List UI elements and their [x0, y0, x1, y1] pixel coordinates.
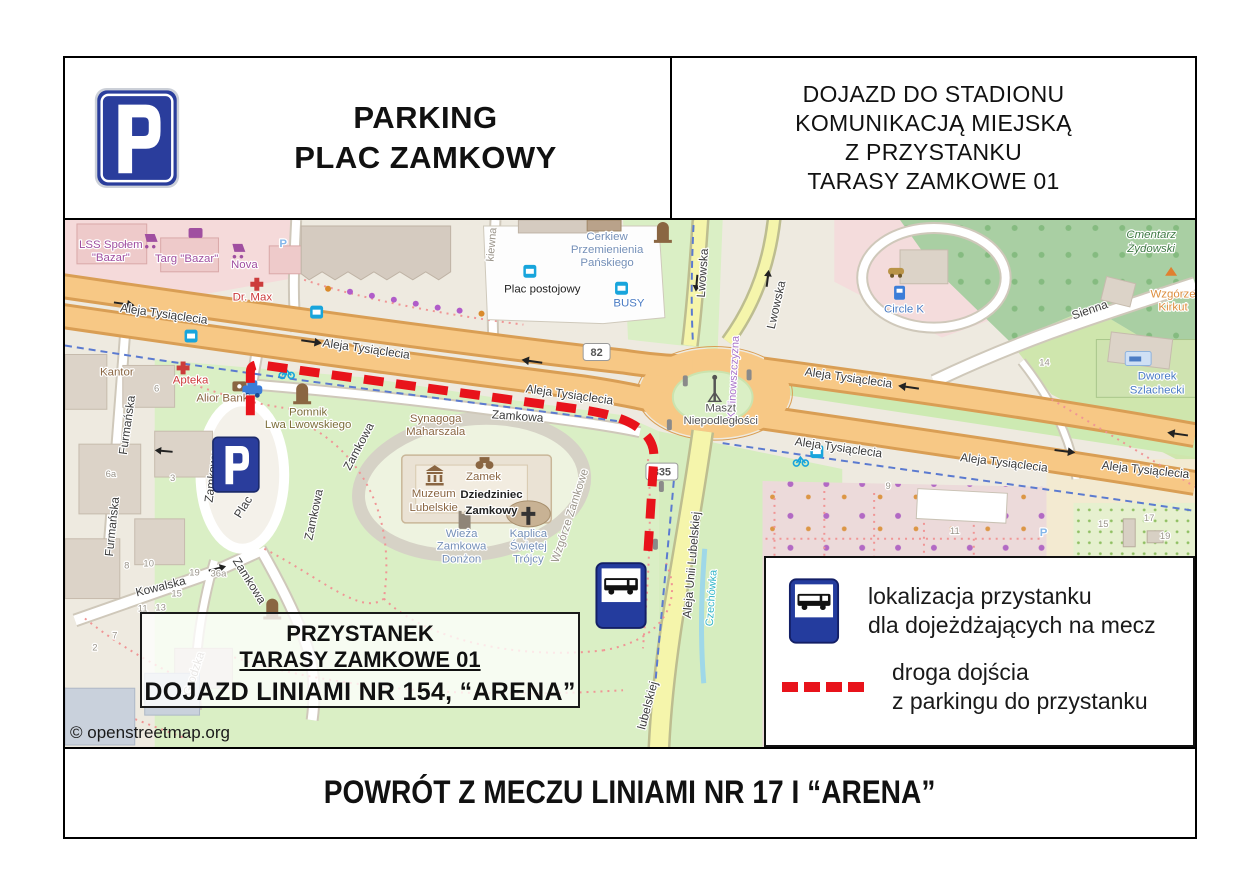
bus-stop-marker	[596, 563, 645, 628]
poi-label: Kaplica	[510, 528, 548, 540]
poi-label: Wzgórze	[1151, 289, 1195, 301]
header-info-line: DOJAZD DO STADIONU	[672, 80, 1195, 109]
poi-label: Żydowski	[1126, 243, 1175, 255]
poi-label: Kantor	[100, 366, 134, 378]
parking-letter-label: P	[1040, 527, 1048, 539]
title-line-1: PARKING	[181, 98, 670, 138]
stop-info-box: PRZYSTANEK TARASY ZAMKOWE 01 DOJAZD LINI…	[140, 612, 580, 708]
header: PARKING PLAC ZAMKOWY DOJAZD DO STADIONU …	[65, 58, 1195, 220]
map-copyright: © openstreetmap.org	[70, 723, 230, 743]
legend-route-label: droga dojścia z parkingu do przystanku	[892, 658, 1148, 716]
svg-text:10: 10	[143, 559, 154, 570]
poi-label: Dziedziniec	[460, 489, 523, 501]
legend-stop-line1: lokalizacja przystanku	[868, 582, 1156, 611]
poi-label: Dr. Max	[233, 292, 273, 304]
poi-label: Przemienienia	[571, 244, 644, 256]
stop-info-line1: PRZYSTANEK	[142, 621, 578, 647]
poi-label: Cerkiew	[586, 231, 628, 243]
svg-text:6: 6	[154, 383, 159, 394]
svg-text:19: 19	[1160, 531, 1171, 542]
header-parking-cell: PARKING PLAC ZAMKOWY	[65, 58, 672, 218]
stop-info-line2: TARASY ZAMKOWE 01	[142, 647, 578, 673]
svg-text:15: 15	[171, 589, 182, 600]
header-info-line: KOMUNIKACJĄ MIEJSKĄ	[672, 109, 1195, 138]
poi-label: Plac postojowy	[504, 284, 581, 296]
poi-label: Donżon	[442, 554, 481, 566]
svg-text:14: 14	[1039, 357, 1050, 368]
poi-label: Zamkowy	[465, 505, 518, 517]
legend-route-dash-icon	[782, 682, 864, 692]
poi-label: Kirkut	[1158, 302, 1188, 314]
poi-label: Maszt	[705, 402, 736, 414]
poi-label: Wieża	[446, 528, 478, 540]
legend: lokalizacja przystanku dla dojeżdżającyc…	[764, 556, 1195, 747]
parking-letter-label: P	[279, 238, 287, 250]
legend-row-route: droga dojścia z parkingu do przystanku	[788, 658, 1193, 716]
svg-text:7: 7	[112, 630, 117, 641]
parking-sign-icon	[93, 87, 181, 189]
map: 82 835 Aleja Tysiąclecia Aleja Ty	[65, 220, 1195, 749]
header-info-cell: DOJAZD DO STADIONU KOMUNIKACJĄ MIEJSKĄ Z…	[672, 58, 1195, 218]
svg-text:2: 2	[92, 642, 97, 653]
svg-text:15: 15	[1098, 519, 1109, 530]
svg-text:11: 11	[950, 526, 960, 537]
poi-label: Dworek	[1138, 370, 1177, 382]
legend-bus-stop-icon	[788, 578, 840, 644]
poi-label: Circle K	[884, 304, 924, 316]
svg-text:19: 19	[189, 568, 200, 579]
poi-label: Cmentarz	[1126, 229, 1176, 241]
hotel-icon	[189, 228, 203, 238]
poi-label: "Bazar"	[92, 252, 130, 264]
poi-label: Pańskiego	[580, 257, 633, 269]
svg-text:8: 8	[124, 561, 129, 572]
poi-label: Lwa Lwowskiego	[265, 419, 351, 431]
poi-label: Niepodległości	[683, 415, 757, 427]
header-info-line: TARASY ZAMKOWE 01	[672, 167, 1195, 196]
page-title: PARKING PLAC ZAMKOWY	[181, 98, 670, 178]
header-info-line: Z PRZYSTANKU	[672, 138, 1195, 167]
poi-label: BUSY	[613, 298, 645, 310]
poi-label: Alior Bank	[196, 392, 248, 404]
poi-label: Maharszala	[406, 426, 466, 438]
legend-route-line1: droga dojścia	[892, 658, 1148, 687]
poi-label: Targ "Bazar"	[155, 253, 218, 265]
stop-info-line3: DOJAZD LINIAMI NR 154, “ARENA”	[142, 678, 578, 707]
poi-label: LSS Społem	[79, 239, 143, 251]
svg-text:9: 9	[885, 481, 890, 492]
poi-label: Zamkowa	[437, 541, 487, 553]
svg-text:17: 17	[1144, 513, 1155, 524]
poi-label: Szlachecki	[1130, 384, 1185, 396]
legend-row-stop: lokalizacja przystanku dla dojeżdżającyc…	[788, 578, 1193, 644]
legend-stop-line2: dla dojeżdżających na mecz	[868, 611, 1156, 640]
poster: PARKING PLAC ZAMKOWY DOJAZD DO STADIONU …	[63, 56, 1197, 839]
footer-text: POWRÓT Z MECZU LINIAMI NR 17 I “ARENA”	[324, 774, 936, 811]
footer-bar: POWRÓT Z MECZU LINIAMI NR 17 I “ARENA”	[65, 749, 1195, 835]
poi-label: Lubelskie	[410, 502, 458, 514]
svg-text:36a: 36a	[211, 569, 228, 580]
poi-label: Zamek	[466, 471, 501, 483]
poi-label: Nova	[231, 259, 258, 271]
poi-label: Pomnik	[289, 406, 327, 418]
parking-marker	[213, 437, 259, 492]
poi-label: Muzeum	[412, 488, 456, 500]
title-line-2: PLAC ZAMKOWY	[181, 138, 670, 178]
poi-label: Apteka	[173, 374, 209, 386]
svg-text:3: 3	[170, 473, 175, 484]
hotel-chip-icon	[1125, 352, 1151, 366]
poi-label: Świętej	[510, 540, 547, 553]
legend-stop-label: lokalizacja przystanku dla dojeżdżającyc…	[868, 582, 1156, 640]
legend-route-line2: z parkingu do przystanku	[892, 687, 1148, 716]
poi-label: Synagoga	[410, 413, 462, 425]
shield-82: 82	[591, 347, 603, 359]
svg-text:6a: 6a	[106, 469, 117, 480]
poi-label: Trójcy	[513, 554, 544, 566]
